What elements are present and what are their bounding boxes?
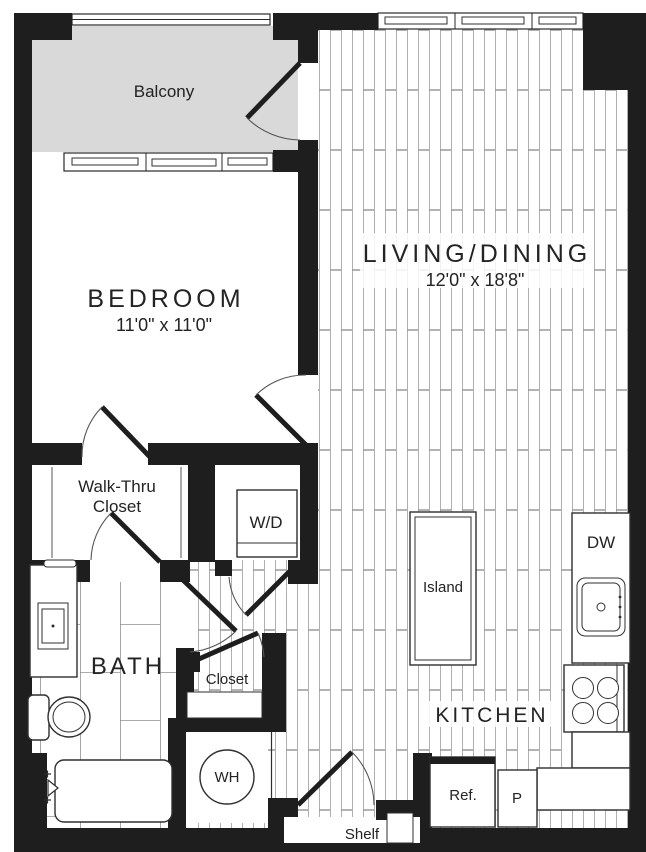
dishwasher-label: DW	[587, 533, 615, 552]
shelf-label: Shelf	[345, 826, 380, 843]
wall-segment	[148, 443, 318, 465]
vanity	[30, 560, 77, 677]
wall-segment	[268, 798, 298, 820]
wall-segment	[420, 828, 646, 852]
wall-segment	[168, 718, 286, 732]
walk-thru-closet-label-line2: Closet	[93, 497, 141, 516]
balcony-railing	[72, 14, 270, 25]
wall-segment	[215, 560, 232, 576]
stove	[564, 665, 624, 732]
living-window	[378, 13, 583, 29]
balcony-label: Balcony	[134, 82, 195, 101]
bathtub	[44, 760, 172, 822]
shelf-niche	[387, 813, 413, 843]
wall-segment	[31, 753, 47, 830]
closet-label: Closet	[206, 671, 249, 688]
water-heater-label: WH	[215, 769, 240, 786]
living-dining-label: LIVING/DINING	[363, 240, 591, 268]
wall-segment	[160, 560, 190, 582]
counter-corner	[537, 768, 630, 810]
bedroom-label: BEDROOM	[87, 285, 244, 313]
kitchen-sink	[577, 578, 625, 636]
wall-segment	[14, 443, 82, 465]
wall-segment	[284, 843, 420, 852]
wall-segment	[273, 13, 318, 40]
kitchen-label: KITCHEN	[435, 704, 548, 727]
wall-segment	[14, 13, 72, 40]
pantry-label: P	[512, 790, 522, 807]
floor-plan: Balcony LIVING/DINING 12'0" x 18'8" BEDR…	[0, 0, 646, 852]
counter-below-stove	[572, 732, 630, 768]
bath-label: BATH	[91, 653, 165, 680]
refrigerator-label: Ref.	[449, 787, 477, 804]
toilet	[28, 695, 90, 740]
closet-shelf	[187, 692, 262, 718]
washer-dryer-label: W/D	[249, 513, 282, 532]
wall-segment	[262, 633, 286, 730]
wall-segment	[628, 13, 646, 852]
bedroom-window	[64, 153, 273, 171]
living-dining-dimensions: 12'0" x 18'8"	[426, 270, 525, 290]
wall-segment	[273, 150, 318, 172]
wall-segment	[298, 40, 318, 63]
wall-segment	[298, 172, 318, 375]
wall-segment	[14, 828, 284, 852]
wall-segment	[318, 13, 378, 30]
walk-thru-closet-label-line1: Walk-Thru	[78, 477, 156, 496]
wall-segment	[288, 560, 318, 584]
wall-segment	[188, 465, 215, 562]
island-label: Island	[423, 579, 463, 596]
bedroom-dimensions: 11'0" x 11'0"	[116, 315, 212, 335]
